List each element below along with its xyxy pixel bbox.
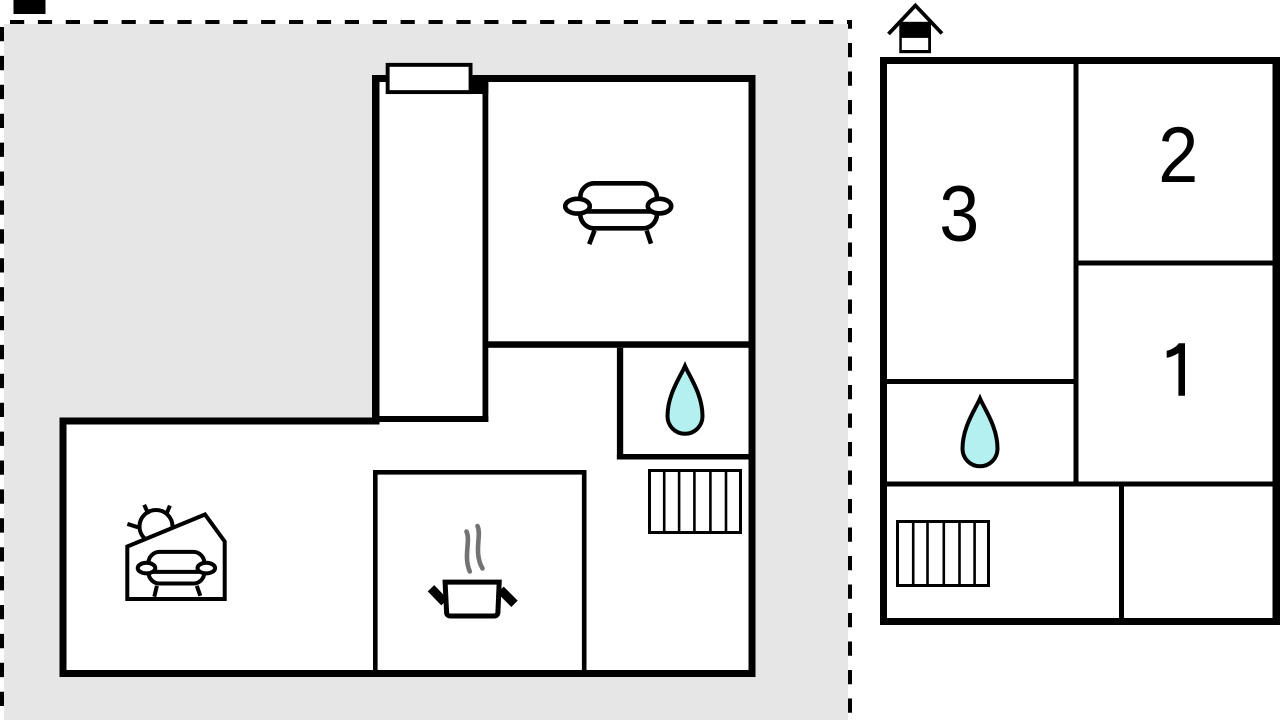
svg-text:2: 2 <box>1158 112 1198 200</box>
svg-text:3: 3 <box>939 171 979 259</box>
